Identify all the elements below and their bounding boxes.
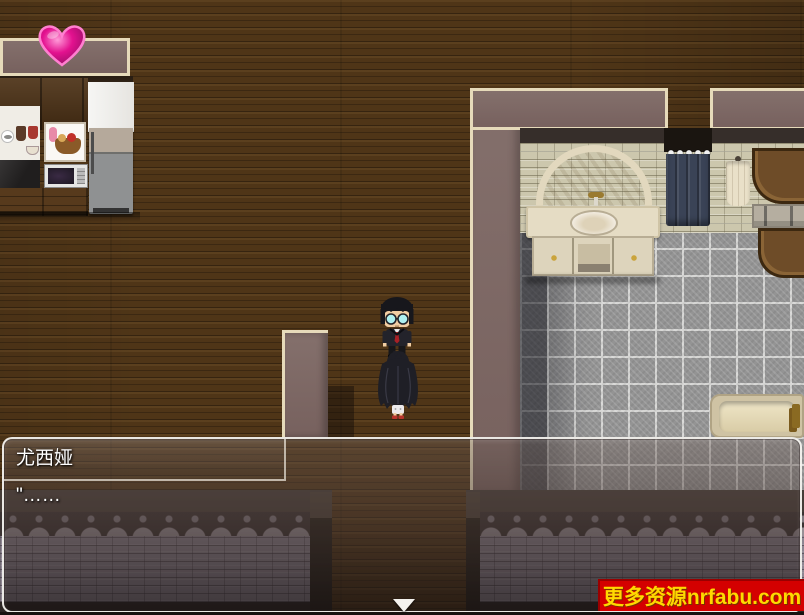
hanging-towel [724, 156, 752, 208]
watermark-banner: 更多资源nrfabu.com [598, 579, 804, 611]
fridge-upper-door [89, 128, 133, 154]
hallway-wall-pillar [282, 330, 328, 437]
refrigerator [89, 128, 133, 214]
heart-icon [36, 23, 88, 67]
towel-body [726, 161, 750, 206]
microwave-window [48, 168, 74, 184]
vanity-shadow [526, 276, 660, 284]
bathtub-basin [719, 401, 795, 432]
speaker-name-box: 尤西娅 [4, 439, 286, 481]
dialogue-text: "…… [16, 485, 61, 507]
bathroom-left-wall [470, 88, 520, 494]
hanging-pot [16, 126, 26, 141]
bathroom-inner-shadow-left [520, 128, 666, 144]
kitchen-backsplash [0, 106, 40, 160]
fish-icon [4, 135, 12, 139]
bread-shelf [44, 122, 86, 162]
bathroom-shelf [752, 204, 804, 228]
bathtub [710, 394, 804, 438]
character-girl-back [370, 350, 426, 420]
speaker-name: 尤西娅 [16, 439, 73, 479]
hanging-pot-red [28, 126, 38, 139]
bread-icon [58, 134, 66, 142]
bathroom-inner-shadow-right [712, 128, 804, 144]
game-screen: 尤西娅 "…… 更多资源nrfabu.com [0, 0, 804, 615]
microwave [44, 164, 88, 188]
fridge-handle [91, 132, 94, 174]
kitchen-floor-shadow [0, 212, 140, 222]
shower-curtain [666, 154, 710, 226]
plate-with-fish [1, 130, 14, 143]
bathroom-top-wall-right [710, 88, 804, 130]
wood-bench-lower [758, 228, 804, 278]
cabinet-open-shelf [578, 244, 610, 272]
fruit-icon [67, 133, 76, 142]
pillar-shadow [328, 386, 354, 437]
continue-indicator-icon [393, 599, 415, 612]
microwave-panel [77, 168, 85, 184]
bread-basket [55, 138, 81, 154]
bathtub-faucet [792, 404, 800, 428]
bathroom-top-wall-left [470, 88, 668, 130]
sink-cabinet [532, 236, 654, 276]
sink-basin [570, 210, 618, 236]
fridge-wall [88, 82, 134, 132]
bowl [26, 146, 39, 155]
